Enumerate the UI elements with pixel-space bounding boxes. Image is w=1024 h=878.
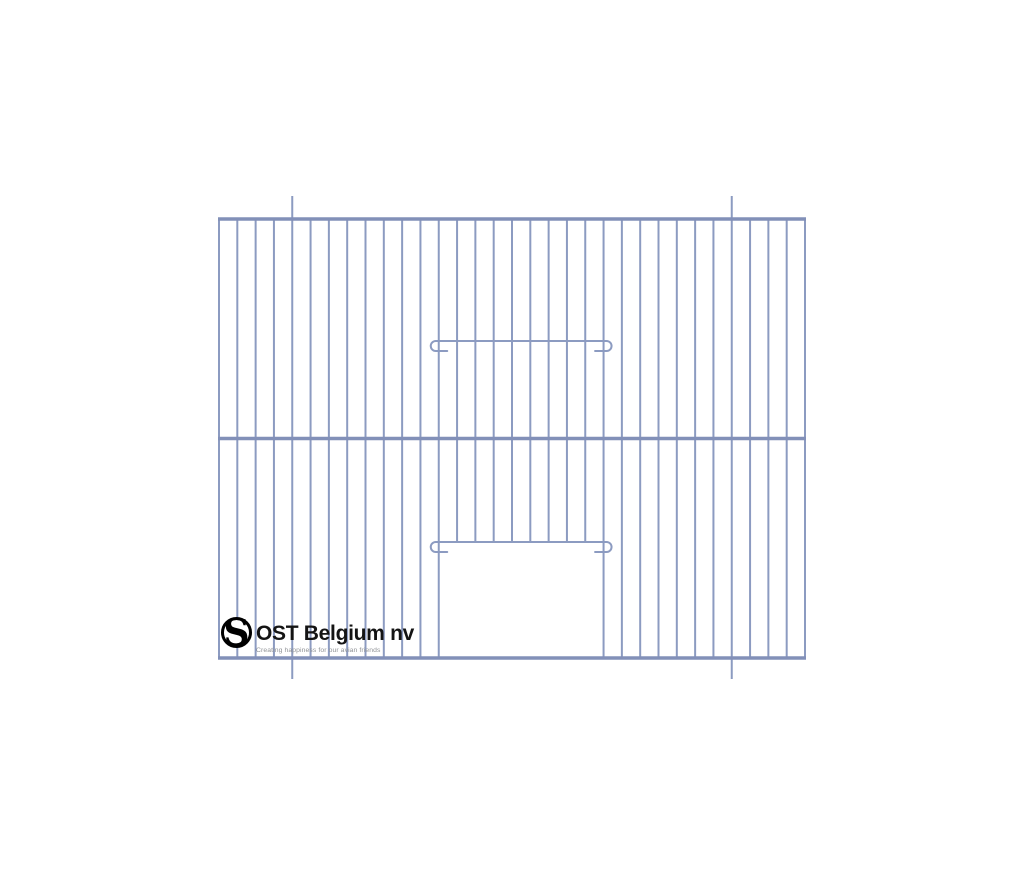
brand-logo: S OST Belgium nv Creating happiness for … [221,615,414,654]
product-drawing-canvas: S OST Belgium nv Creating happiness for … [0,0,1024,878]
brand-name: OST Belgium nv [256,623,414,644]
bottom-door-latch-wire [431,542,612,552]
logo-monogram-ring: S [221,617,252,648]
logo-text-block: OST Belgium nv Creating happiness for ou… [256,615,414,654]
brand-tagline: Creating happiness for our avian friends [256,647,414,654]
cage-front-drawing [0,0,1024,878]
